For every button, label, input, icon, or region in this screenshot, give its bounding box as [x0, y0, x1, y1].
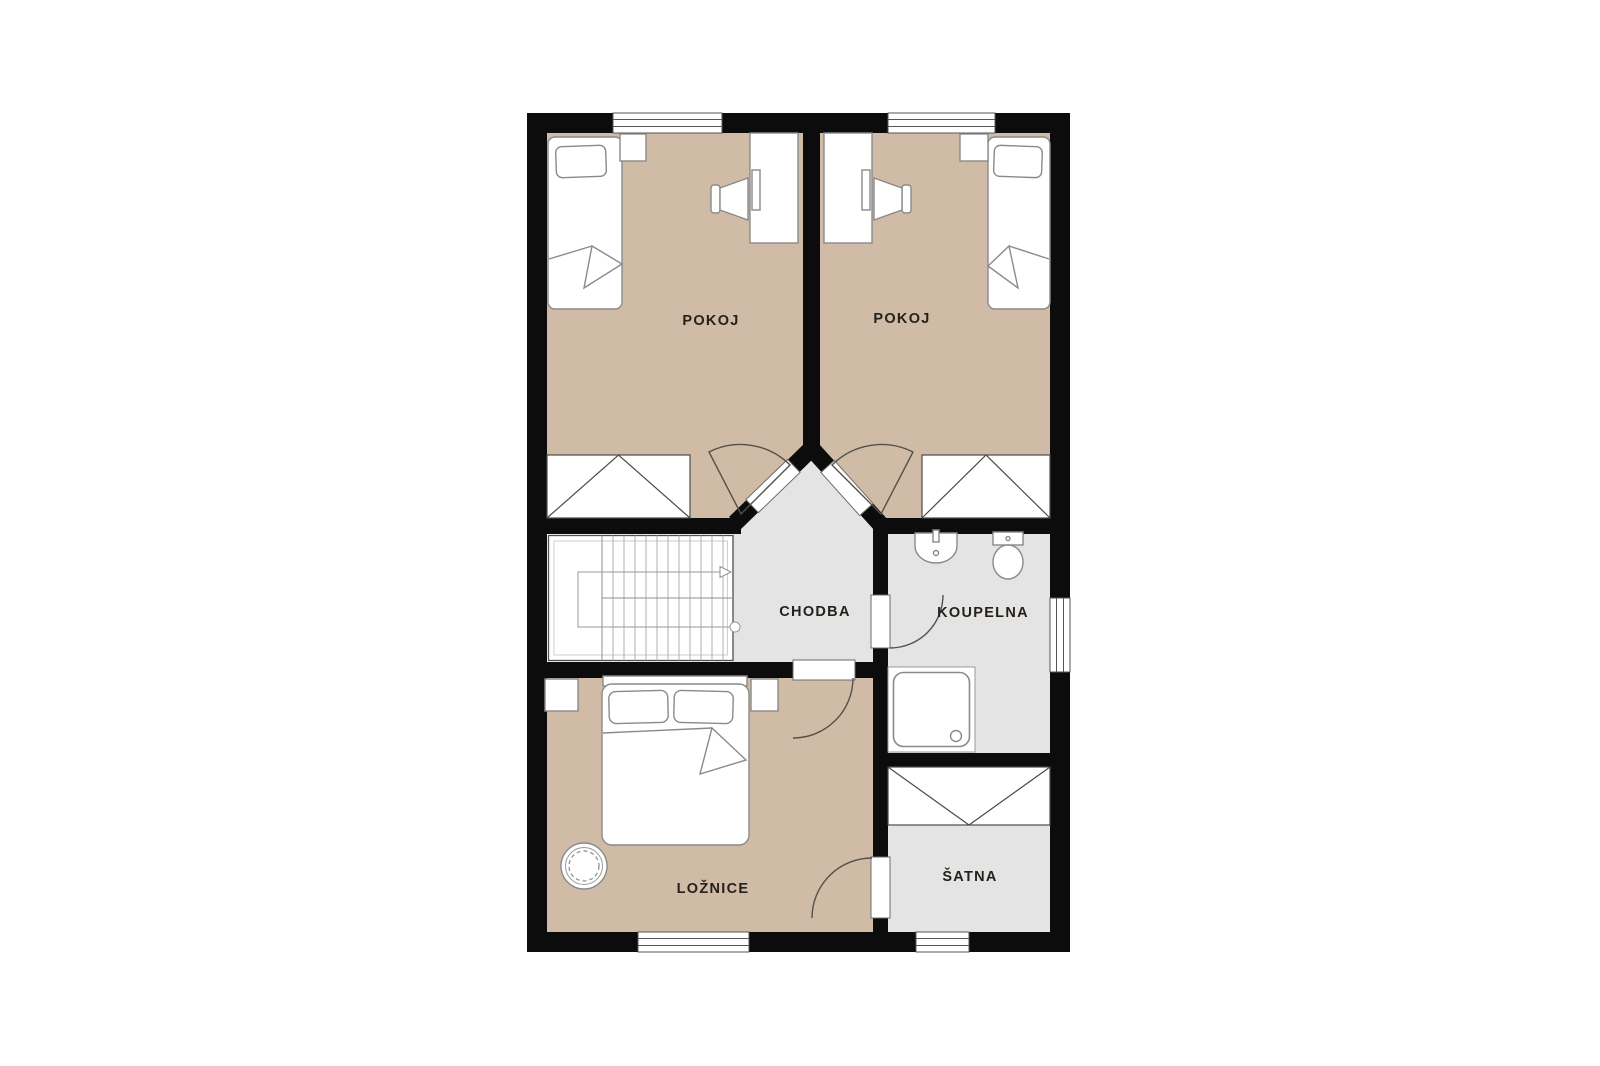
toilet-icon [993, 532, 1023, 579]
wardrobe-icon [547, 455, 690, 518]
floor-plan-page: POKOJ POKOJ CHODBA KOUPELNA LOŽNICE ŠATN… [0, 0, 1600, 1066]
wall-koupelna-bottom [873, 753, 1050, 767]
wall-between-pokoj [803, 133, 820, 455]
room-label-pokoj-right: POKOJ [873, 311, 930, 327]
single-bed-icon [988, 137, 1050, 309]
wall-stairs-top [527, 518, 741, 534]
window-pokoj-left-icon [613, 113, 722, 133]
wall-koupelna-left-upper [873, 518, 888, 595]
nightstand-icon [545, 679, 578, 711]
shower-icon [888, 667, 975, 752]
door-opening-satna [871, 857, 890, 918]
wall-loznice-right-low [873, 918, 888, 932]
satna-furniture [888, 767, 1050, 825]
window-satna-icon [916, 932, 969, 952]
window-pokoj-right-icon [888, 113, 995, 133]
wall-koupelna-top [879, 518, 1050, 534]
double-bed-icon [602, 676, 749, 845]
nightstand-icon [751, 679, 778, 711]
staircase-icon [549, 536, 741, 661]
single-bed-icon [548, 137, 622, 309]
desk-icon [824, 133, 872, 243]
window-loznice-icon [638, 932, 749, 952]
window-koupelna-icon [1050, 598, 1070, 672]
outer-wall-bottom [527, 932, 1070, 952]
desk-icon [750, 133, 798, 243]
sink-icon [915, 530, 957, 563]
door-opening-koupelna [871, 595, 890, 648]
chair-icon [874, 178, 911, 220]
nightstand-icon [620, 134, 646, 161]
door-opening-loznice [793, 660, 855, 680]
room-label-pokoj-left: POKOJ [682, 313, 739, 329]
wall-loznice-right-mid [873, 648, 888, 857]
outer-wall-right [1050, 113, 1070, 952]
room-label-loznice: LOŽNICE [677, 881, 750, 897]
monitor-icon [752, 170, 760, 210]
wardrobe-icon [922, 455, 1050, 518]
nightstand-icon [960, 134, 988, 161]
wardrobe-icon [888, 767, 1050, 825]
chair-icon [711, 178, 748, 220]
room-label-koupelna: KOUPELNA [937, 605, 1029, 621]
potted-plant-icon [561, 843, 607, 889]
room-label-chodba: CHODBA [779, 604, 850, 620]
floor-plan-drawing [0, 0, 1600, 1066]
room-label-satna: ŠATNA [942, 869, 997, 885]
monitor-icon [862, 170, 870, 210]
